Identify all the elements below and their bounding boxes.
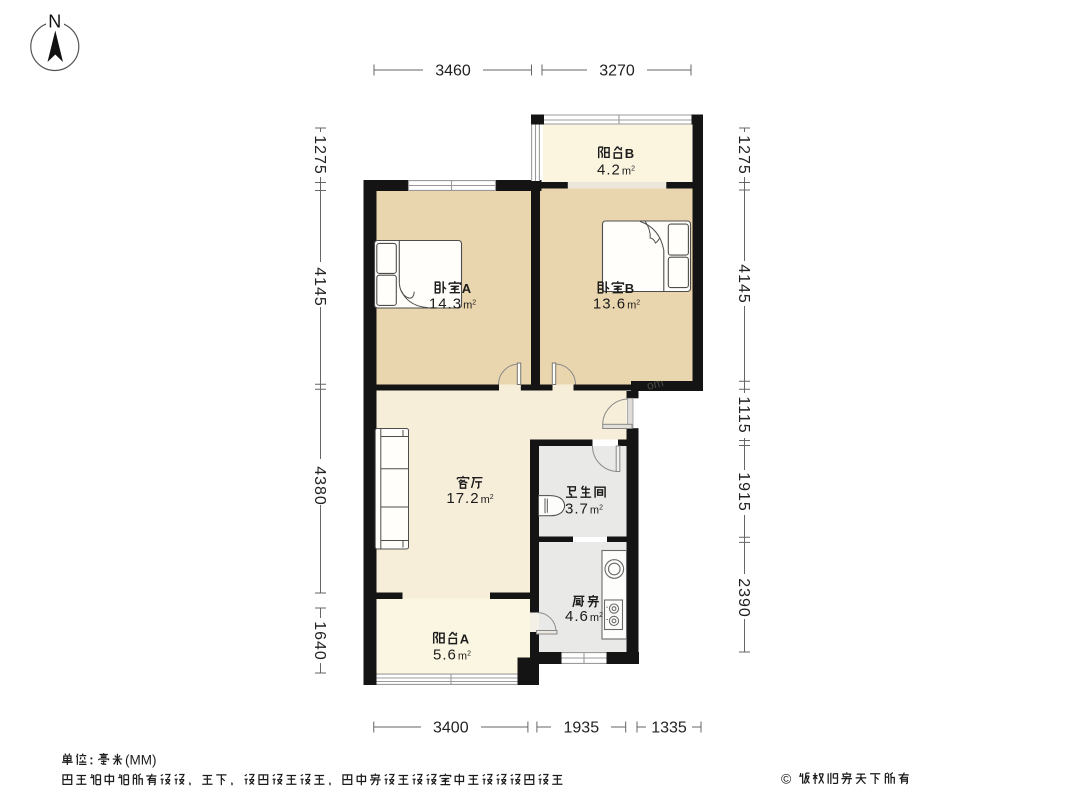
svg-text:A: A	[462, 281, 472, 296]
svg-text:4145: 4145	[311, 267, 328, 307]
svg-text:1275: 1275	[311, 135, 328, 175]
svg-text:3270: 3270	[599, 63, 635, 80]
svg-text:3400: 3400	[433, 720, 469, 737]
svg-text:B: B	[625, 146, 634, 161]
svg-text:A: A	[460, 632, 470, 647]
svg-text:1640: 1640	[311, 621, 328, 661]
svg-text:1915: 1915	[735, 472, 752, 512]
svg-text:4380: 4380	[311, 466, 328, 506]
svg-text:4145: 4145	[735, 264, 752, 304]
svg-text:2390: 2390	[735, 578, 752, 618]
svg-text:1275: 1275	[735, 135, 752, 175]
svg-text:©: ©	[781, 771, 792, 787]
svg-text:1935: 1935	[564, 720, 600, 737]
svg-text:B: B	[625, 281, 634, 296]
svg-text:N: N	[48, 12, 61, 32]
svg-text:(MM): (MM)	[125, 752, 156, 767]
svg-text:3460: 3460	[435, 63, 471, 80]
svg-text:1335: 1335	[651, 720, 687, 737]
svg-text:1115: 1115	[735, 396, 752, 433]
